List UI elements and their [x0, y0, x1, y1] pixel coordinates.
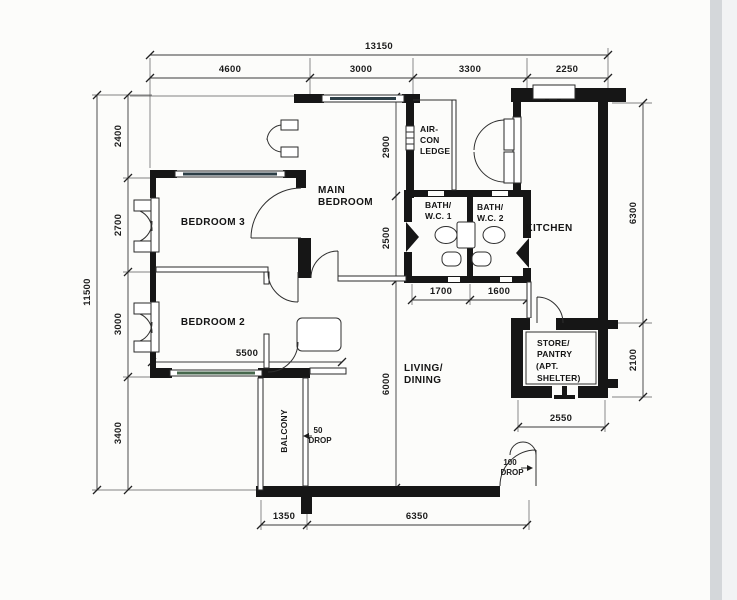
label-store-1: STORE/ — [537, 338, 570, 348]
basin1-icon — [435, 227, 457, 244]
scan-edge — [0, 0, 737, 600]
floor-plan-drawing: 13150 4600 3000 3300 2250 11500 2400 270… — [0, 0, 737, 600]
label-aircon-2: CON — [420, 135, 440, 145]
dim-left-seg2: 2700 — [113, 214, 124, 236]
main-bedroom-window — [322, 95, 404, 102]
dim-interior-1700: 1700 — [430, 286, 452, 297]
dim-interior-2900: 2900 — [381, 136, 392, 158]
dim-interior-2550: 2550 — [550, 413, 572, 424]
dim-left-seg3: 3000 — [113, 313, 124, 335]
entrance-drop-value: 100 — [503, 458, 517, 467]
label-living-1: LIVING/ — [404, 363, 443, 374]
basin2-icon — [483, 227, 505, 244]
entrance-drop-word: DROP — [500, 468, 524, 477]
dim-bottom-seg1: 1350 — [273, 511, 295, 522]
dim-top-seg2: 3000 — [350, 64, 372, 75]
bedroom2-window — [170, 370, 262, 376]
label-aircon-1: AIR- — [420, 124, 438, 134]
dim-overall-height: 11500 — [82, 278, 93, 305]
label-living-2: DINING — [404, 375, 441, 386]
dim-overall-width: 13150 — [365, 41, 393, 52]
dim-interior-1600: 1600 — [488, 286, 510, 297]
dim-top-seg1: 4600 — [219, 64, 241, 75]
dim-left-seg4: 3400 — [113, 422, 124, 444]
floor-plan-page: 13150 4600 3000 3300 2250 11500 2400 270… — [0, 0, 737, 600]
label-kitchen: KITCHEN — [525, 223, 572, 234]
dim-interior-5500: 5500 — [236, 348, 258, 359]
dim-interior-6000: 6000 — [381, 373, 392, 395]
label-bath1-2: W.C. 1 — [425, 211, 452, 221]
dim-left-seg1: 2400 — [113, 125, 124, 147]
label-store-4: SHELTER) — [537, 373, 580, 383]
dim-top-seg4: 2250 — [556, 64, 578, 75]
dim-top-seg3: 3300 — [459, 64, 481, 75]
dim-interior-2500: 2500 — [381, 227, 392, 249]
dim-right-seg2: 2100 — [628, 349, 639, 371]
label-balcony: BALCONY — [279, 409, 289, 453]
vanity-counter — [457, 222, 475, 248]
bedroom3-window — [175, 171, 285, 177]
aircon-louvre-window — [406, 126, 414, 150]
dim-bottom-seg2: 6350 — [406, 511, 428, 522]
kitchen-top-window — [533, 85, 575, 102]
label-bedroom3: BEDROOM 3 — [181, 217, 245, 228]
label-bath1-1: BATH/ — [425, 200, 452, 210]
balcony-drop-value: 50 — [314, 426, 323, 435]
label-main-bedroom-2: BEDROOM — [318, 197, 373, 208]
label-store-2: PANTRY — [537, 349, 572, 359]
toilet2-icon — [472, 252, 491, 266]
toilet1-icon — [442, 252, 461, 266]
label-store-3: (APT. — [536, 361, 558, 371]
label-aircon-3: LEDGE — [420, 146, 450, 156]
balcony-drop-word: DROP — [308, 436, 332, 445]
label-bedroom2: BEDROOM 2 — [181, 317, 245, 328]
label-bath2-1: BATH/ — [477, 202, 504, 212]
dim-right-seg1: 6300 — [628, 202, 639, 224]
label-main-bedroom-1: MAIN — [318, 185, 345, 196]
label-bath2-2: W.C. 2 — [477, 213, 504, 223]
